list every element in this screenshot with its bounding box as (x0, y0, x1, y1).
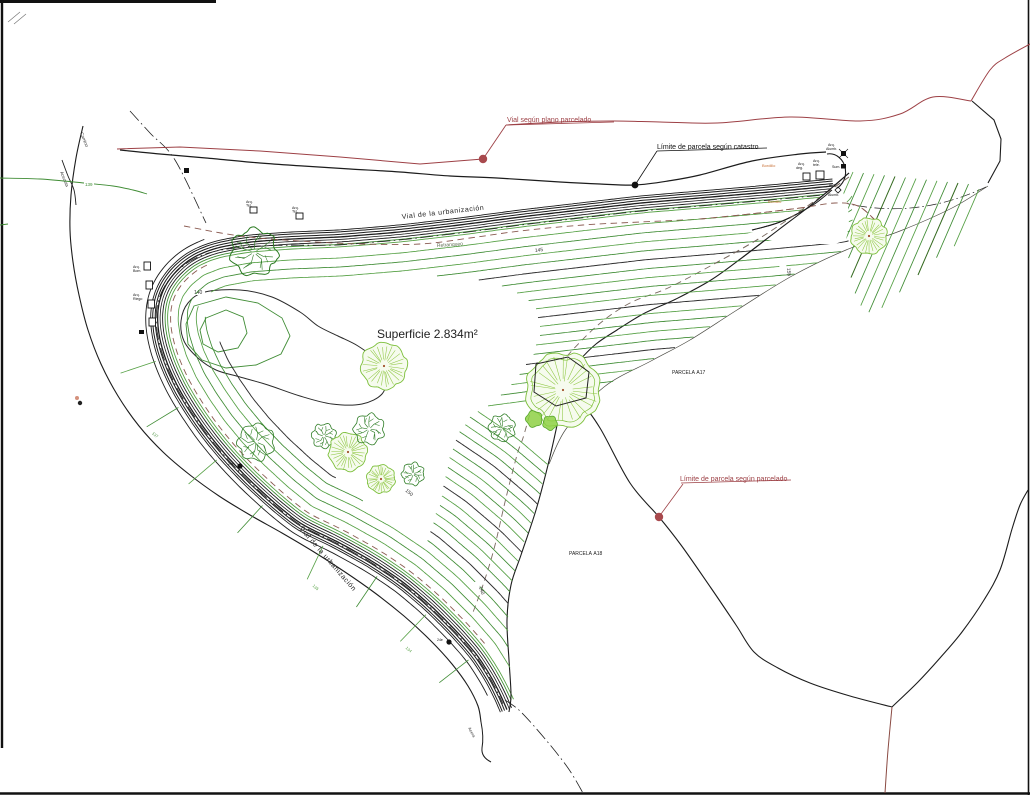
svg-text:Bordillo: Bordillo (768, 199, 782, 204)
svg-text:PARCELA A17: PARCELA A17 (672, 370, 705, 376)
svg-text:Superficie 2.834m²: Superficie 2.834m² (377, 327, 478, 341)
svg-text:Arq.: Arq. (829, 183, 836, 187)
svg-text:139: 139 (85, 182, 93, 187)
svg-text:Riego: Riego (133, 297, 142, 301)
svg-text:Tel.: Tel. (292, 210, 298, 214)
svg-text:deg.: deg. (796, 166, 803, 170)
svg-text:24e: 24e (437, 638, 443, 642)
svg-text:Alumb.: Alumb. (828, 193, 839, 197)
svg-text:Bom.: Bom. (133, 269, 141, 273)
svg-text:155: 155 (785, 268, 792, 277)
svg-text:Bordillo: Bordillo (762, 163, 776, 168)
svg-text:Alumb.: Alumb. (826, 147, 837, 151)
svg-text:Sum.: Sum. (832, 165, 840, 169)
svg-text:PARCELA A18: PARCELA A18 (569, 551, 602, 557)
svg-text:145: 145 (535, 247, 544, 254)
svg-text:tele.: tele. (813, 163, 820, 167)
svg-text:24e: 24e (228, 462, 234, 466)
svg-text:Tel.: Tel. (246, 204, 252, 208)
